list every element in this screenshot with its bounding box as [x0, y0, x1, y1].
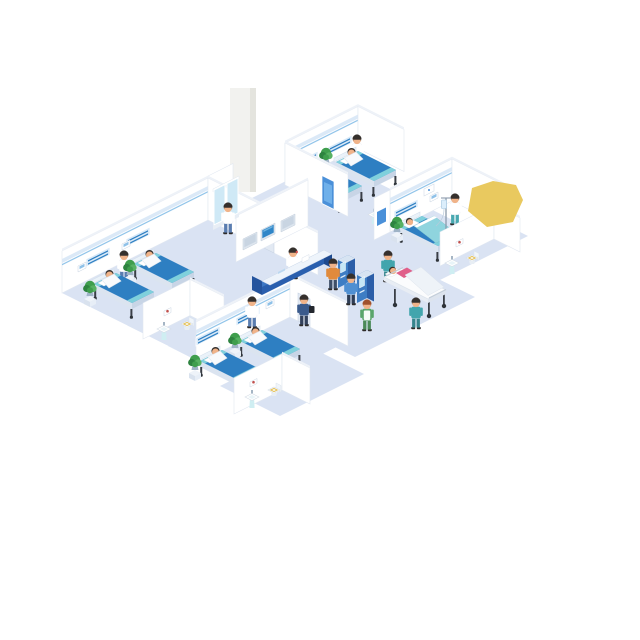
room-right-return-wall [374, 190, 390, 240]
blue-door [322, 176, 334, 210]
hospital-illustration: Hospital ward floor — isometric cutaway … [0, 0, 640, 640]
bag-icon [309, 306, 315, 313]
apron [364, 311, 370, 321]
potted-plant [188, 355, 202, 381]
phone-icon [296, 251, 298, 253]
illustration-canvas: Hospital ward floor — isometric cutaway … [0, 0, 640, 640]
structural-column [230, 88, 256, 192]
check-in-kiosk [357, 270, 374, 303]
